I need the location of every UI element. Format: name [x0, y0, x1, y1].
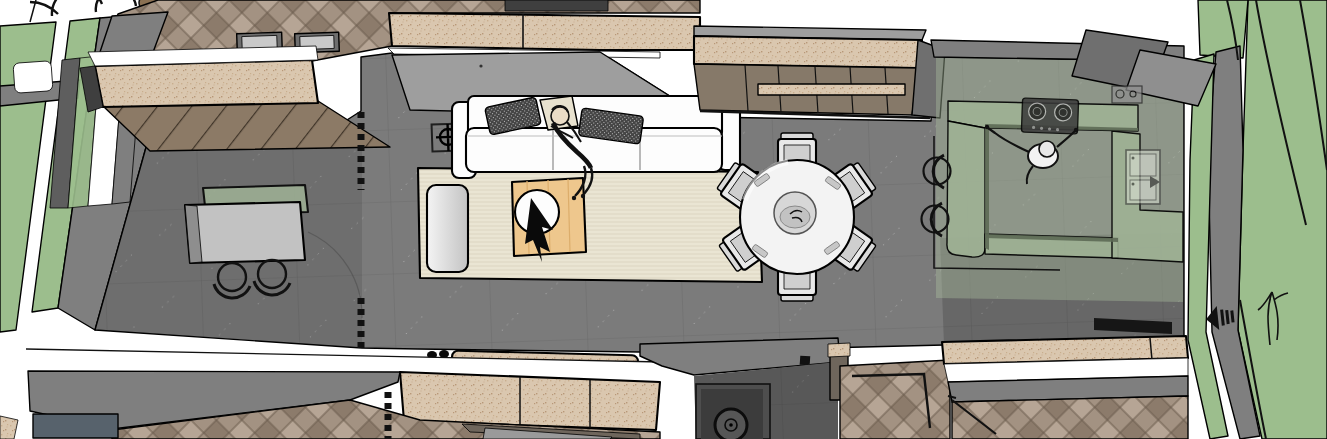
lawn: [1238, 0, 1327, 439]
3d-floorplan-viewport[interactable]: [0, 0, 1327, 439]
coffee-table: [512, 178, 586, 262]
cooktop: [1021, 98, 1078, 134]
outdoor-table: [185, 202, 305, 263]
kitchen-sink: [1126, 150, 1160, 204]
bottom-middle-floor: [840, 360, 950, 439]
cabinet-niche-shelf: [758, 84, 905, 95]
living-room: [418, 96, 762, 282]
shoes: [439, 350, 449, 358]
side-table: [427, 185, 468, 272]
wall-oven-plate: [1112, 86, 1142, 103]
washing-machine-nook: [696, 384, 770, 439]
dark-ledge: [505, 0, 608, 11]
scene-canvas[interactable]: [0, 0, 1327, 439]
kitchen: [922, 30, 1217, 334]
cut-wall: [694, 36, 922, 68]
bottom-right-floor: [952, 396, 1188, 439]
door-stop: [800, 356, 811, 366]
headboard-panel: [33, 414, 118, 438]
cut-wall: [95, 60, 318, 107]
planter: [13, 61, 53, 94]
wall-dot: [479, 64, 482, 67]
cut-wall: [389, 13, 700, 50]
tall-cabinet-wall: [694, 26, 945, 118]
